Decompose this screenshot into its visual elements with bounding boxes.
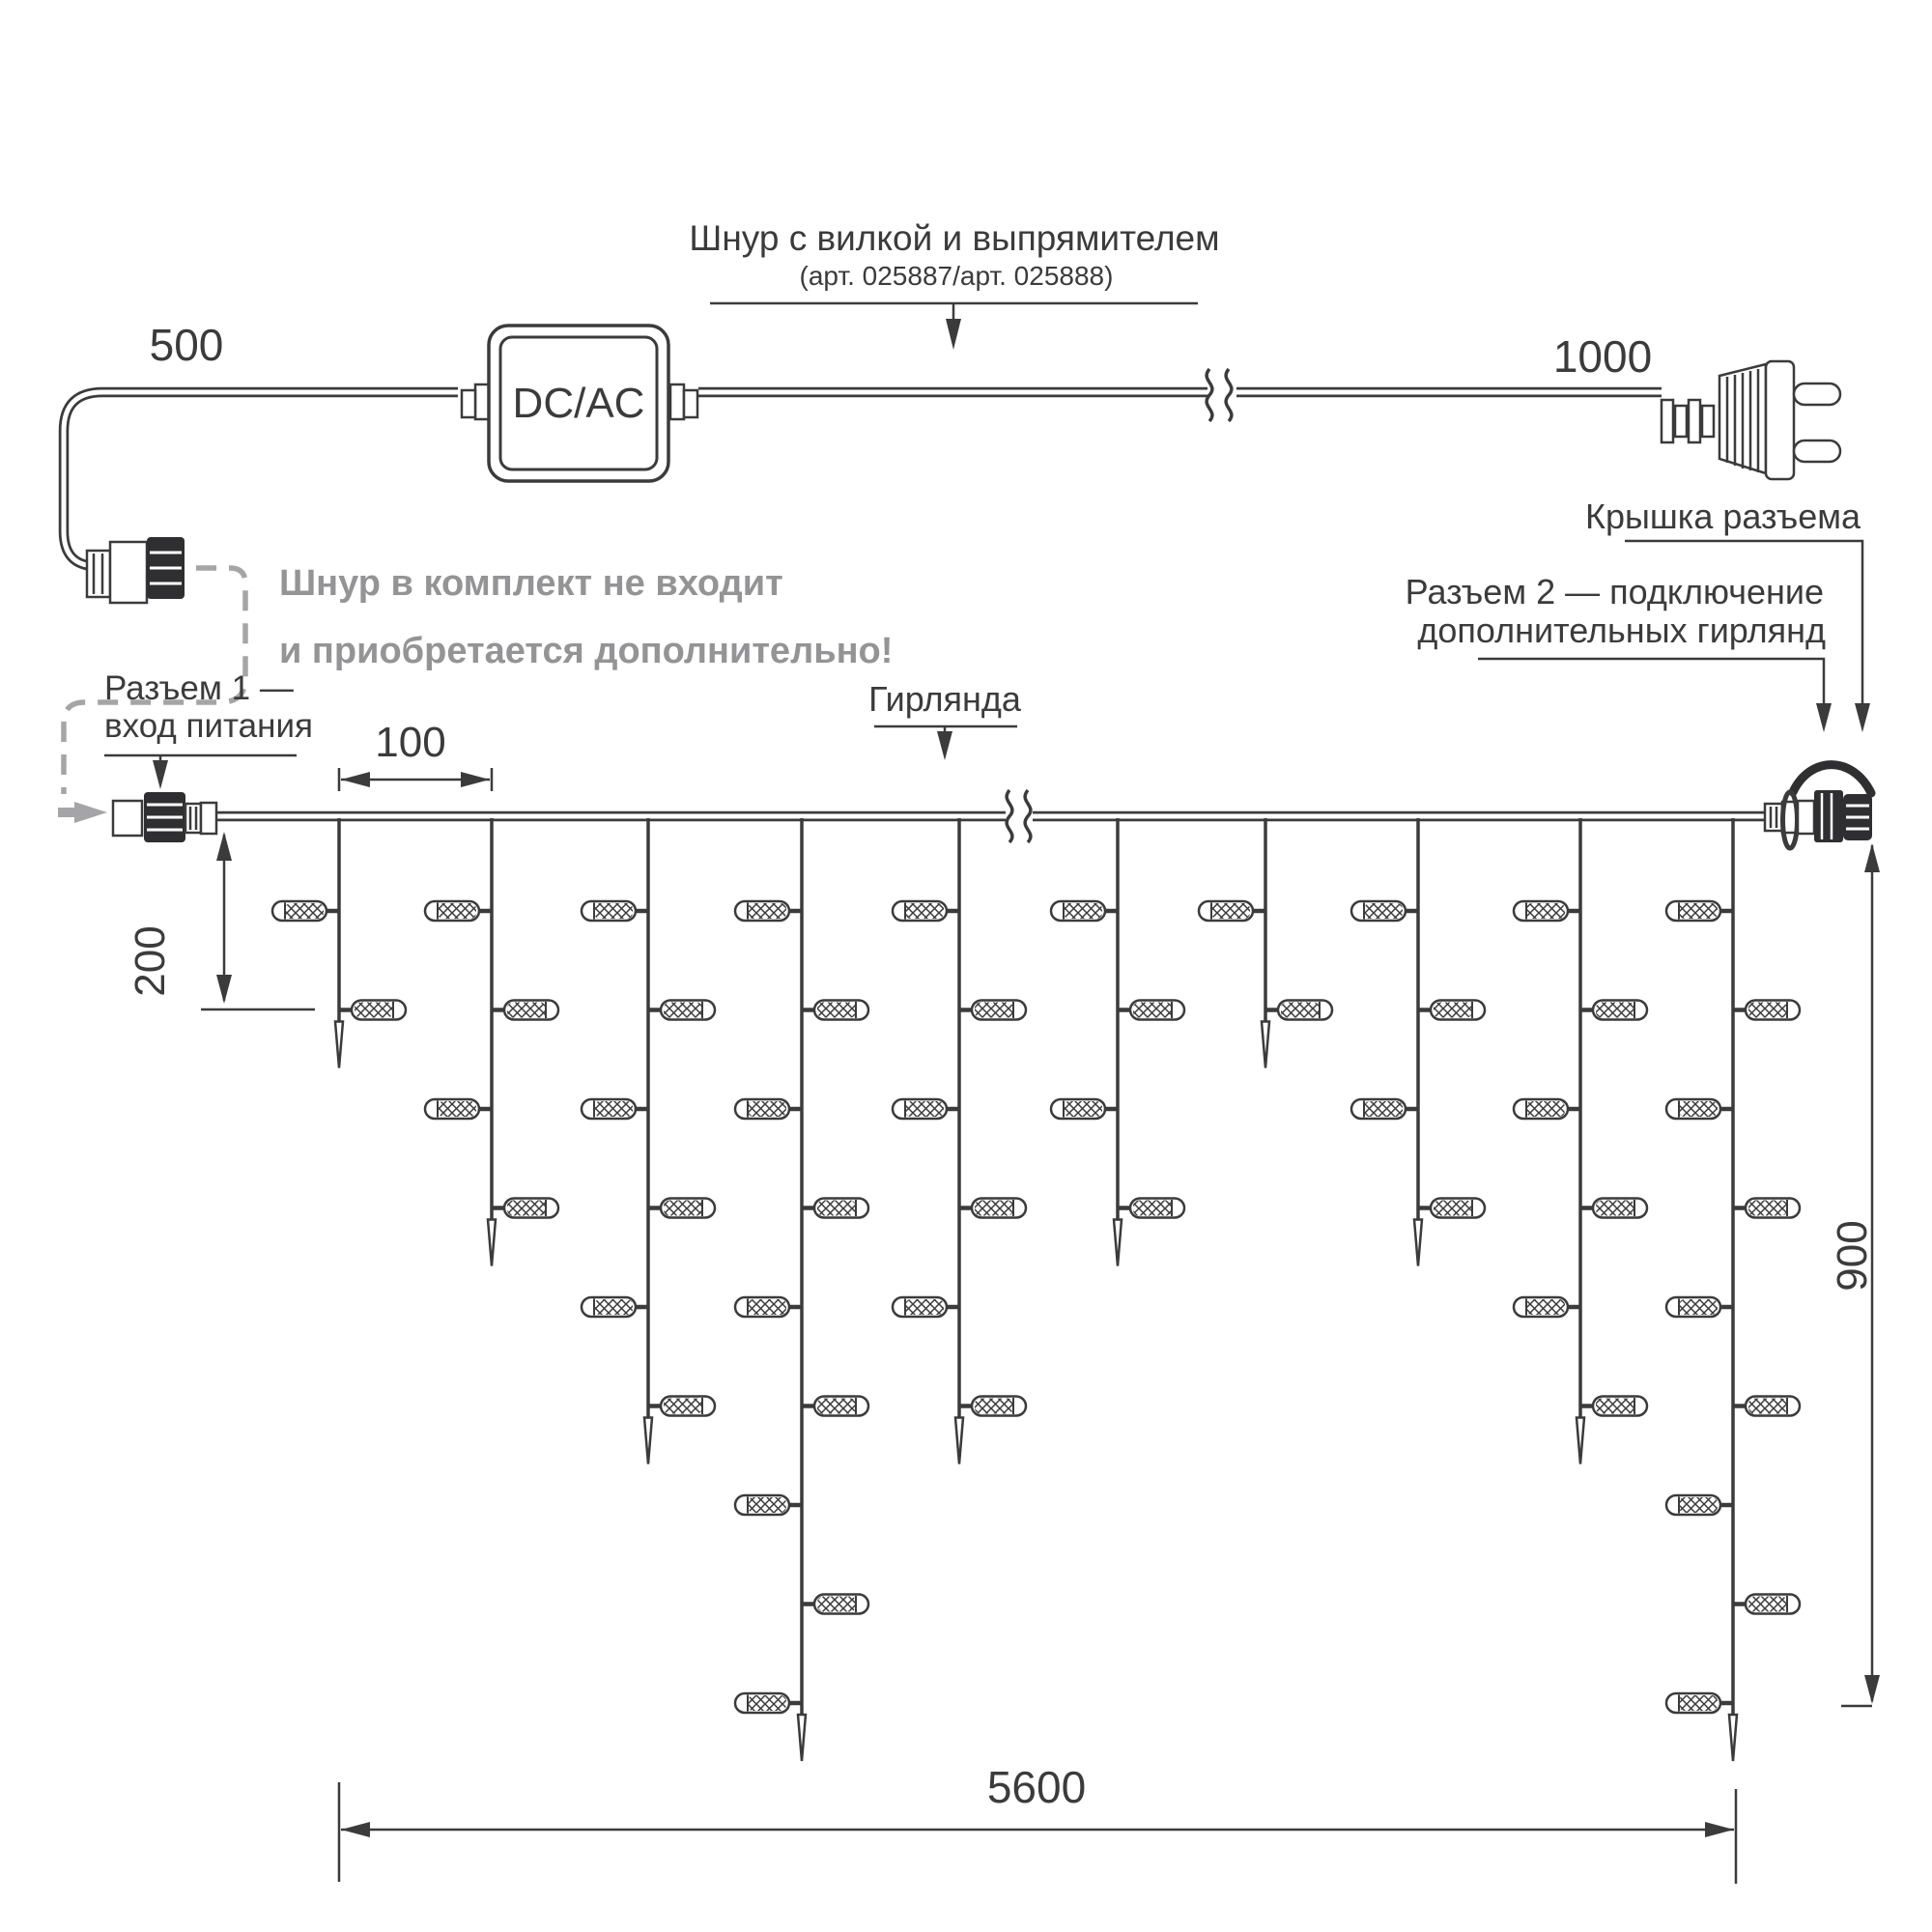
led-bulb-icon (735, 901, 802, 921)
led-bulb-icon (582, 1099, 648, 1119)
led-bulb-icon (492, 1199, 558, 1218)
garland-drop (582, 818, 715, 1464)
led-bulb-icon (1733, 1397, 1800, 1416)
garland-drop (425, 818, 558, 1266)
led-bulb-icon (1351, 901, 1418, 921)
garland-break-icon (1006, 790, 1033, 842)
connector-2 (1765, 765, 1872, 848)
led-bulb-icon (735, 1297, 802, 1317)
icicle-garland-diagram: DC/AC 500 1000 Шнур с вилкой и выпрямите… (0, 0, 1932, 1932)
garland-drop (1666, 818, 1800, 1761)
led-bulb-icon (1514, 901, 1580, 921)
drop-tip (955, 1418, 963, 1464)
led-bulb-icon (735, 1693, 802, 1713)
cap-loop-icon (1793, 765, 1871, 793)
led-bulb-icon (893, 1099, 959, 1119)
led-bulb-icon (1199, 901, 1265, 921)
led-bulb-icon (648, 1397, 715, 1416)
drop-tip (798, 1715, 806, 1761)
power-plug-icon (1662, 361, 1840, 479)
connector2-label-line1: Разъем 2 — подключение (1406, 572, 1824, 611)
connector-cap-label: Крышка разъема (1585, 497, 1861, 536)
led-bulb-icon (735, 1099, 802, 1119)
note-line2: и приобретается дополнительно! (279, 631, 893, 671)
garland-drop (1051, 818, 1184, 1266)
led-bulb-icon (492, 1001, 558, 1020)
drop-tip (335, 1022, 343, 1068)
cord-end-connector (87, 537, 185, 603)
led-bulb-icon (1666, 1297, 1733, 1317)
led-bulb-icon (1733, 1595, 1800, 1614)
converter-left-joint (475, 384, 489, 419)
drop-tip (1414, 1220, 1422, 1266)
converter-right-joint (670, 384, 684, 419)
garland-drop (893, 818, 1026, 1464)
led-bulb-icon (1580, 1001, 1647, 1020)
led-bulb-icon (802, 1595, 868, 1614)
dim-900-label: 900 (1829, 1220, 1876, 1291)
garland-drop (735, 818, 868, 1761)
gray-arrow-icon (58, 802, 107, 823)
drop-tip (488, 1220, 496, 1266)
drop-tip (1577, 1418, 1584, 1464)
cord-left-wire (64, 392, 458, 566)
led-bulb-icon (1118, 1199, 1184, 1218)
led-bulb-icon (1051, 901, 1118, 921)
led-bulb-icon (425, 901, 492, 921)
connector-1 (113, 792, 216, 842)
cord-title-callout: Шнур с вилкой и выпрямителем (арт. 02588… (689, 218, 1219, 350)
led-bulb-icon (1733, 1001, 1800, 1020)
leader-arrow-icon (946, 319, 961, 350)
led-bulb-icon (1580, 1397, 1647, 1416)
dim-200-label: 200 (127, 925, 174, 996)
leader-arrow-icon (1855, 703, 1870, 732)
led-bulb-icon (648, 1199, 715, 1218)
led-bulb-icon (1051, 1099, 1118, 1119)
drop-tip (1114, 1220, 1122, 1266)
leader-arrow-icon (153, 760, 168, 789)
connector1-callout: Разъем 1 — вход питания (104, 669, 313, 789)
garland-drops (272, 818, 1800, 1761)
drop-tip (644, 1418, 652, 1464)
led-bulb-icon (1514, 1099, 1580, 1119)
led-bulb-icon (425, 1099, 492, 1119)
led-bulb-icon (959, 1199, 1026, 1218)
dim-5600: 5600 (339, 1762, 1736, 1884)
drop-tip (1729, 1715, 1737, 1761)
leader-arrow-icon (1816, 703, 1832, 732)
garland-section (113, 765, 1872, 1761)
dim-900: 900 (1829, 843, 1880, 1706)
led-bulb-icon (893, 1297, 959, 1317)
connector2-label-line2: дополнительных гирлянд (1417, 611, 1826, 650)
garland-drop (1514, 818, 1647, 1464)
led-bulb-icon (959, 1397, 1026, 1416)
connector1-label-line2: вход питания (104, 707, 313, 745)
connector-cap-icon (1843, 794, 1872, 840)
dim-5600-label: 5600 (987, 1762, 1086, 1812)
led-bulb-icon (1580, 1199, 1647, 1218)
led-bulb-icon (1666, 1495, 1733, 1515)
connector1-label-line1: Разъем 1 — (104, 669, 294, 707)
plug-prong (1794, 384, 1840, 405)
led-bulb-icon (1666, 901, 1733, 921)
led-bulb-icon (582, 901, 648, 921)
cord-subtitle: (арт. 025887/арт. 025888) (800, 261, 1114, 291)
connector2-callout: Разъем 2 — подключение дополнительных ги… (1406, 572, 1832, 732)
led-bulb-icon (582, 1297, 648, 1317)
garland-callout: Гирлянда (868, 679, 1022, 760)
garland-drop (1199, 818, 1332, 1068)
converter-label: DC/AC (513, 380, 645, 427)
led-bulb-icon (272, 901, 339, 921)
led-bulb-icon (802, 1397, 868, 1416)
led-bulb-icon (648, 1001, 715, 1020)
garland-label: Гирлянда (868, 679, 1022, 719)
led-bulb-icon (893, 901, 959, 921)
dim-1000-label: 1000 (1553, 331, 1652, 382)
drop-tip (1262, 1022, 1269, 1068)
dc-ac-converter: DC/AC (462, 326, 697, 481)
led-bulb-icon (1418, 1199, 1485, 1218)
led-bulb-icon (1265, 1001, 1332, 1020)
led-bulb-icon (1514, 1297, 1580, 1317)
dim-100: 100 (339, 719, 492, 791)
garland-drop (272, 818, 406, 1068)
cord-break-icon (1207, 369, 1236, 421)
led-bulb-icon (1418, 1001, 1485, 1020)
garland-drop (1351, 818, 1485, 1266)
dim-500-label: 500 (150, 320, 224, 370)
dim-100-label: 100 (375, 719, 445, 766)
leader-arrow-icon (937, 731, 952, 760)
led-bulb-icon (339, 1001, 406, 1020)
led-bulb-icon (1666, 1693, 1733, 1713)
led-bulb-icon (1666, 1099, 1733, 1119)
led-bulb-icon (802, 1199, 868, 1218)
note-line1: Шнур в комплект не входит (279, 563, 783, 604)
led-bulb-icon (1351, 1099, 1418, 1119)
led-bulb-icon (735, 1495, 802, 1515)
led-bulb-icon (1118, 1001, 1184, 1020)
led-bulb-icon (802, 1001, 868, 1020)
led-bulb-icon (959, 1001, 1026, 1020)
cord-title: Шнур с вилкой и выпрямителем (689, 218, 1219, 258)
plug-prong (1794, 440, 1840, 462)
power-cord-section: DC/AC 500 1000 Шнур с вилкой и выпрямите… (64, 218, 1840, 603)
led-bulb-icon (1733, 1199, 1800, 1218)
